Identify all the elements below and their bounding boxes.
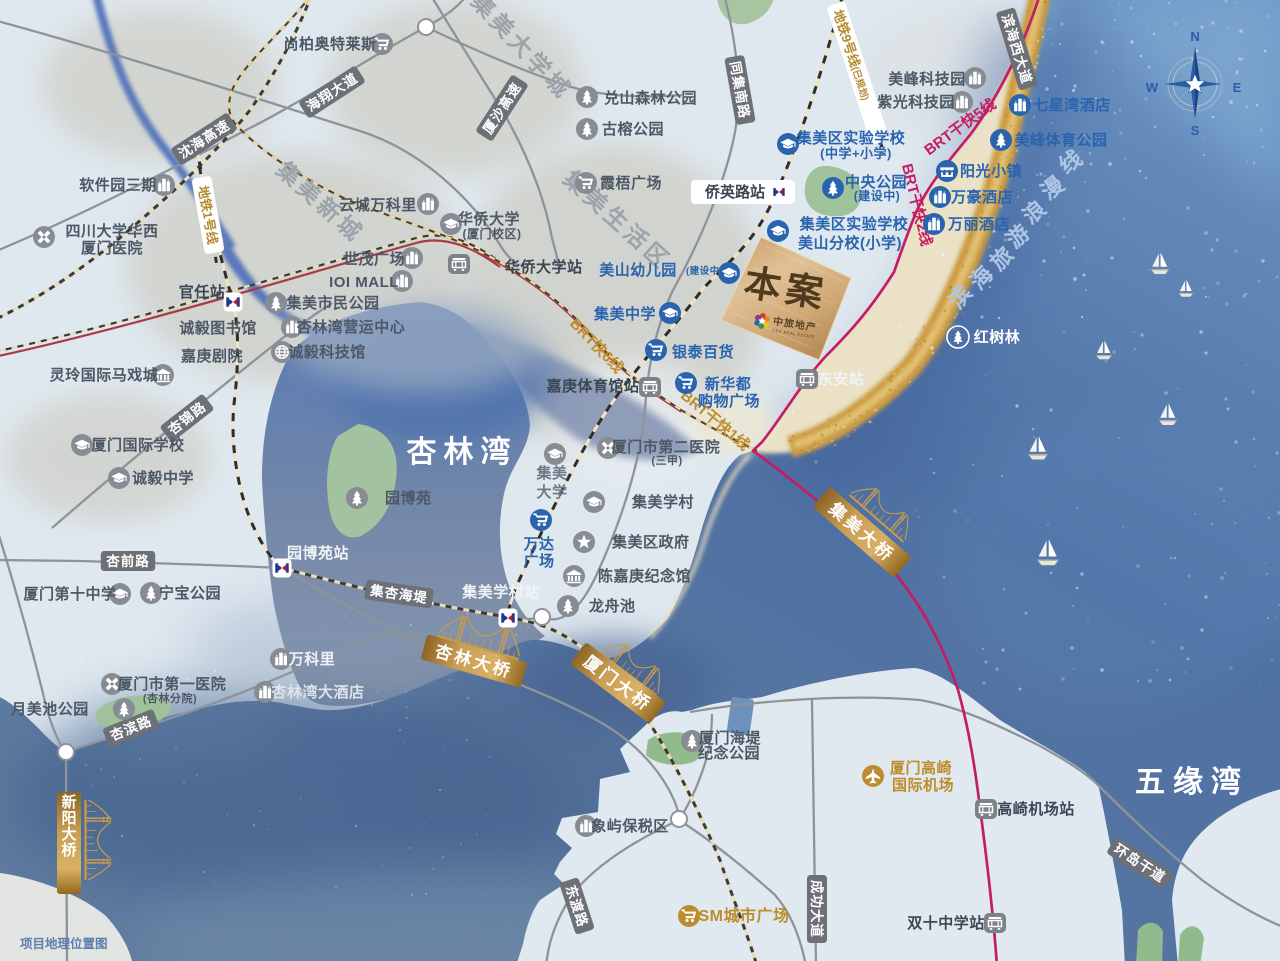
svg-text:红树林: 红树林 (974, 328, 1021, 346)
svg-text:集美中学: 集美中学 (593, 305, 656, 323)
svg-text:高崎机场站: 高崎机场站 (997, 800, 1075, 818)
svg-text:集美区实验学校: 集美区实验学校 (799, 215, 909, 233)
svg-text:N: N (1190, 29, 1199, 44)
svg-text:购物广场: 购物广场 (698, 392, 760, 410)
svg-text:灵玲国际马戏城: 灵玲国际马戏城 (50, 366, 159, 384)
svg-text:厦门第十中学: 厦门第十中学 (23, 585, 116, 603)
svg-text:万豪酒店: 万豪酒店 (950, 188, 1013, 206)
svg-text:集美学村站: 集美学村站 (461, 583, 540, 601)
svg-text:阳光小镇: 阳光小镇 (960, 162, 1022, 180)
svg-text:S: S (1191, 123, 1200, 138)
svg-text:新华都: 新华都 (705, 375, 752, 393)
svg-text:SM城市广场: SM城市广场 (698, 906, 789, 925)
svg-text:杏林湾营运中心: 杏林湾营运中心 (296, 318, 406, 336)
svg-text:华侨大学: 华侨大学 (458, 210, 520, 228)
svg-text:集美区政府: 集美区政府 (611, 533, 690, 551)
svg-text:美峰体育公园: 美峰体育公园 (1014, 131, 1107, 149)
svg-text:集美: 集美 (535, 464, 568, 482)
svg-text:厦门医院: 厦门医院 (81, 239, 143, 257)
svg-text:厦门市第一医院: 厦门市第一医院 (118, 675, 227, 693)
svg-text:月美池公园: 月美池公园 (10, 700, 89, 718)
svg-text:(杏林分院): (杏林分院) (143, 691, 197, 705)
svg-text:美山幼儿园: 美山幼儿园 (599, 261, 677, 279)
svg-text:杏林湾大酒店: 杏林湾大酒店 (270, 683, 364, 701)
svg-text:五缘湾: 五缘湾 (1135, 765, 1249, 799)
svg-text:宁宝公园: 宁宝公园 (159, 584, 221, 602)
svg-text:大学: 大学 (536, 483, 567, 501)
svg-text:古榕公园: 古榕公园 (602, 120, 664, 138)
svg-text:国际机场: 国际机场 (892, 776, 954, 794)
svg-text:陈嘉庚纪念馆: 陈嘉庚纪念馆 (598, 567, 691, 585)
svg-text:厦门国际学校: 厦门国际学校 (91, 436, 185, 454)
svg-text:嘉庚剧院: 嘉庚剧院 (180, 347, 243, 365)
svg-text:侨英路站: 侨英路站 (704, 183, 765, 201)
svg-text:华侨大学站: 华侨大学站 (505, 258, 583, 276)
svg-text:七星湾酒店: 七星湾酒店 (1033, 96, 1111, 114)
svg-text:集美学村: 集美学村 (631, 493, 694, 511)
svg-text:霞梧广场: 霞梧广场 (600, 174, 662, 192)
svg-text:紫光科技园: 紫光科技园 (877, 93, 955, 111)
svg-text:银泰百货: 银泰百货 (672, 343, 734, 361)
svg-text:(厦门校区): (厦门校区) (463, 226, 522, 241)
svg-text:集美区实验学校: 集美区实验学校 (796, 129, 906, 147)
svg-text:世茂广场: 世茂广场 (343, 250, 405, 268)
svg-text:万科里: 万科里 (288, 650, 336, 668)
svg-text:诚毅科技馆: 诚毅科技馆 (288, 343, 366, 361)
svg-text:官任站: 官任站 (179, 283, 226, 301)
svg-text:万达: 万达 (522, 535, 554, 553)
svg-text:四川大学华西: 四川大学华西 (65, 222, 158, 240)
svg-text:园博苑: 园博苑 (385, 489, 432, 507)
svg-text:云城万科里: 云城万科里 (339, 196, 417, 214)
svg-text:诚毅中学: 诚毅中学 (132, 469, 194, 487)
svg-text:新阳大桥: 新阳大桥 (61, 793, 77, 859)
svg-text:厦门高崎: 厦门高崎 (890, 759, 952, 777)
svg-text:象屿保税区: 象屿保税区 (591, 817, 669, 835)
svg-text:杏前路: 杏前路 (106, 553, 150, 569)
svg-text:成功大道: 成功大道 (809, 880, 825, 938)
svg-text:东安站: 东安站 (818, 370, 865, 388)
svg-text:(建设中): (建设中) (854, 188, 901, 203)
svg-text:诚毅图书馆: 诚毅图书馆 (179, 319, 257, 337)
svg-text:美峰科技园: 美峰科技园 (888, 70, 966, 88)
svg-text:双十中学站: 双十中学站 (907, 914, 985, 932)
svg-text:美山分校(小学): 美山分校(小学) (798, 234, 902, 252)
svg-text:(建设中): (建设中) (686, 265, 723, 277)
svg-text:(三甲): (三甲) (651, 454, 682, 467)
svg-text:纪念公园: 纪念公园 (698, 744, 760, 762)
svg-text:杏林湾: 杏林湾 (407, 435, 518, 469)
svg-text:软件园三期: 软件园三期 (79, 176, 157, 194)
svg-text:E: E (1233, 80, 1242, 95)
svg-text:万丽酒店: 万丽酒店 (947, 215, 1010, 233)
svg-text:(中学+小学): (中学+小学) (820, 146, 892, 161)
svg-text:W: W (1146, 80, 1159, 95)
svg-text:IOI MALL: IOI MALL (329, 274, 399, 291)
svg-text:广场: 广场 (523, 552, 554, 570)
svg-text:兑山森林公园: 兑山森林公园 (604, 89, 697, 107)
svg-text:嘉庚体育馆站: 嘉庚体育馆站 (545, 377, 639, 395)
svg-text:集美市民公园: 集美市民公园 (285, 294, 379, 312)
svg-text:项目地理位置图: 项目地理位置图 (20, 936, 108, 951)
svg-text:厦门市第二医院: 厦门市第二医院 (612, 438, 721, 456)
svg-text:龙舟池: 龙舟池 (588, 597, 636, 615)
svg-text:尚柏奥特莱斯: 尚柏奥特莱斯 (283, 35, 376, 53)
svg-text:园博苑站: 园博苑站 (287, 544, 349, 562)
